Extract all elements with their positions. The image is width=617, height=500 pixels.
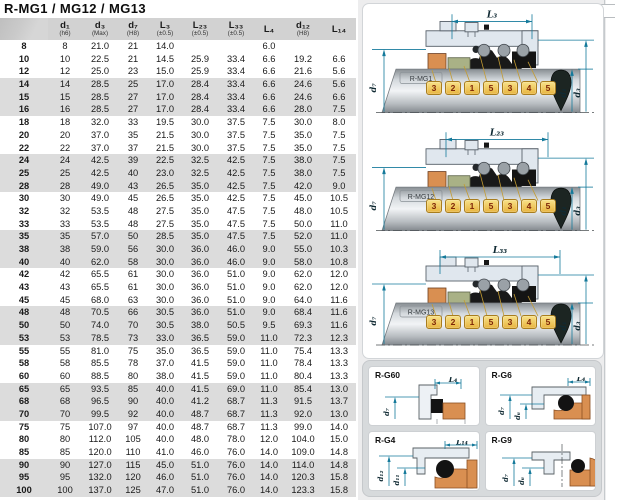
column-header: L₃(±0.5) bbox=[148, 18, 182, 40]
elastomer bbox=[431, 399, 443, 413]
part-number-tag: 3 bbox=[426, 315, 442, 329]
dim-d1-label: d₁ bbox=[558, 206, 568, 215]
seat-lip bbox=[590, 458, 597, 486]
table-row: 434365.56130.036.051.09.062.012.0 bbox=[0, 281, 356, 294]
diagram-r-mg1: R-MG1 L₃ d₇ d₁ d₃ bbox=[364, 8, 600, 120]
part-number-tag: 4 bbox=[521, 199, 537, 213]
panel-r-g6: R-G6 L₄ d₇ d₆ bbox=[485, 366, 597, 426]
spring-coils bbox=[478, 162, 529, 174]
seat-detail-panel: R-G60 L₄ d₇ R-G6 bbox=[362, 360, 602, 497]
table-row: 282849.04326.535.042.57.542.09.0 bbox=[0, 180, 356, 193]
seat-elastomer bbox=[428, 288, 446, 303]
page-title: R-MG1 / MG12 / MG13 bbox=[4, 1, 146, 16]
part-number-tags: 3215345 bbox=[426, 199, 556, 213]
part-number-tag: 1 bbox=[464, 315, 480, 329]
table-row: 8821.02114.06.0 bbox=[0, 40, 356, 53]
r-g4-drawing: L₁₄ d₁₂ d₁₁ bbox=[369, 440, 480, 490]
column-header: L₃₃(±0.5) bbox=[218, 18, 254, 40]
part-number-tag: 2 bbox=[445, 199, 461, 213]
table-row: 100100137.012547.051.076.014.0123.315.8 bbox=[0, 484, 356, 497]
column-header: d₇(H8) bbox=[118, 18, 148, 40]
r-g9-drawing: d₇ d₆ bbox=[486, 440, 597, 490]
part-number-tag: 3 bbox=[502, 315, 518, 329]
seat bbox=[443, 403, 465, 419]
dim-d3-label: d₃ bbox=[572, 206, 582, 216]
table-row: 353557.05028.535.047.57.552.011.0 bbox=[0, 230, 356, 243]
table-row: 252542.54023.032.542.57.538.07.5 bbox=[0, 167, 356, 180]
part-number-tag: 4 bbox=[521, 315, 537, 329]
dim-l23-label: L₂₃ bbox=[489, 127, 504, 138]
part-number-tag: 5 bbox=[483, 81, 499, 95]
dim-d1-label: d₁ bbox=[558, 88, 568, 97]
shaft-lines bbox=[437, 419, 465, 424]
table-row: 707099.59240.048.768.711.392.013.0 bbox=[0, 408, 356, 421]
part-number-tag: 3 bbox=[426, 81, 442, 95]
column-header: d₃(Max) bbox=[82, 18, 118, 40]
table-row: 404062.05830.036.046.09.058.010.8 bbox=[0, 256, 356, 269]
table-row: 242442.53922.532.542.57.538.07.5 bbox=[0, 154, 356, 167]
table-row: 424265.56130.036.051.09.062.012.0 bbox=[0, 268, 356, 281]
part-number-tags: 3215345 bbox=[426, 81, 556, 95]
table-row: 555581.07535.036.559.011.075.413.3 bbox=[0, 345, 356, 358]
column-header: L₄ bbox=[254, 18, 284, 40]
table-corner-cell bbox=[0, 18, 48, 40]
table-row: 606088.58038.041.559.011.080.413.3 bbox=[0, 370, 356, 383]
table-row: 535378.57333.036.559.011.072.312.3 bbox=[0, 332, 356, 345]
o-ring bbox=[436, 460, 454, 478]
r-g60-drawing: L₄ d₇ bbox=[369, 377, 480, 425]
column-header: d₁₂(H8) bbox=[284, 18, 322, 40]
table-row: 161628.52717.028.433.46.628.07.5 bbox=[0, 103, 356, 116]
part-number-tag: 3 bbox=[426, 199, 442, 213]
table-row: 454568.06330.036.051.09.064.011.6 bbox=[0, 294, 356, 307]
part-number-tag: 3 bbox=[502, 199, 518, 213]
part-number-tag: 5 bbox=[540, 199, 556, 213]
part-number-tag: 5 bbox=[483, 199, 499, 213]
set-screw bbox=[484, 260, 489, 265]
seat-lip bbox=[582, 395, 590, 419]
column-header: L₂₃(±0.5) bbox=[182, 18, 218, 40]
dim-d7-label: d₇ bbox=[368, 201, 378, 211]
seal-face bbox=[448, 292, 470, 303]
seat-elastomer bbox=[428, 54, 446, 70]
table-row: 303049.04526.535.042.57.545.010.5 bbox=[0, 192, 356, 205]
table-row: 686896.59040.041.268.711.391.513.7 bbox=[0, 395, 356, 408]
datasheet-page: R-MG1 / MG12 / MG13 d₁(h6)d₃(Max)d₇(H8)L… bbox=[0, 0, 617, 500]
part-number-tag: 5 bbox=[483, 315, 499, 329]
table-row: 484870.56630.536.051.09.068.411.6 bbox=[0, 306, 356, 319]
dim-d7-label: d₇ bbox=[368, 316, 378, 326]
table-row: 141428.52517.028.433.46.624.65.6 bbox=[0, 78, 356, 91]
dim-d1-label: d₁ bbox=[558, 321, 568, 330]
panel-r-g4: R-G4 L₁₄ d₁₂ d₁₁ bbox=[368, 431, 480, 491]
page-edge-line bbox=[604, 0, 605, 500]
table-row: 181832.03319.530.037.57.530.08.0 bbox=[0, 116, 356, 129]
r-mg12-drawing: R-MG12 L₂₃ d₇ d₁ d₃ bbox=[364, 126, 600, 242]
seal-diagrams-panel: R-MG1 L₃ d₇ d₁ d₃ bbox=[362, 3, 604, 359]
r-mg13-drawing: R-MG13 L₃₃ d₇ d₁ d₃ bbox=[364, 244, 600, 356]
panel-r-g60: R-G60 L₄ d₇ bbox=[368, 366, 480, 426]
dim-l3-label: L₃ bbox=[486, 9, 497, 20]
seat-housing bbox=[532, 452, 570, 474]
table-row: 151528.52717.028.433.46.624.66.6 bbox=[0, 91, 356, 104]
dim-l14-label: L₁₄ bbox=[455, 440, 468, 447]
table-header-row: d₁(h6)d₃(Max)d₇(H8)L₃(±0.5)L₂₃(±0.5)L₃₃(… bbox=[0, 18, 356, 40]
part-number-tag: 5 bbox=[540, 81, 556, 95]
part-number-tag: 5 bbox=[540, 315, 556, 329]
o-ring bbox=[571, 459, 585, 473]
dim-d6-label: d₆ bbox=[513, 412, 522, 420]
table-row: 585885.57837.041.559.011.078.413.3 bbox=[0, 357, 356, 370]
part-number-tag: 2 bbox=[445, 81, 461, 95]
dim-d3-label: d₃ bbox=[572, 321, 582, 331]
table-row: 656593.58540.041.569.011.085.413.0 bbox=[0, 383, 356, 396]
dim-d12-label: d₁₂ bbox=[376, 470, 385, 481]
dim-d7-label: d₇ bbox=[382, 408, 391, 416]
table-row: 222237.03721.530.037.57.535.07.5 bbox=[0, 142, 356, 155]
part-number-tag: 1 bbox=[464, 199, 480, 213]
diagram-r-mg12: R-MG12 L₂₃ d₇ d₁ d₃ bbox=[364, 126, 600, 238]
r-g6-drawing: L₄ d₇ d₆ bbox=[486, 377, 597, 425]
o-ring bbox=[558, 395, 574, 411]
seat-elastomer bbox=[428, 172, 446, 188]
set-screw bbox=[484, 25, 489, 30]
column-header: L₁₄ bbox=[322, 18, 356, 40]
part-number-tag: 1 bbox=[464, 81, 480, 95]
set-screw bbox=[484, 143, 489, 148]
table-row: 9595132.012046.051.076.014.0120.315.8 bbox=[0, 471, 356, 484]
dim-d3-label: d₃ bbox=[572, 88, 582, 98]
table-row: 101022.52114.525.933.46.619.26.6 bbox=[0, 53, 356, 66]
part-number-tag: 4 bbox=[521, 81, 537, 95]
table-row: 121225.02315.025.933.46.621.65.6 bbox=[0, 65, 356, 78]
spring-coils bbox=[478, 44, 529, 56]
dimension-table: d₁(h6)d₃(Max)d₇(H8)L₃(±0.5)L₂₃(±0.5)L₃₃(… bbox=[0, 18, 356, 497]
table-row: 8585120.011041.046.076.014.0109.014.8 bbox=[0, 446, 356, 459]
dim-l4-label: L₄ bbox=[448, 377, 458, 384]
table-body: 8821.02114.06.0101022.52114.525.933.46.6… bbox=[0, 40, 356, 497]
part-number-tags: 3215345 bbox=[426, 315, 556, 329]
table-row: 7575107.09740.048.768.711.399.014.0 bbox=[0, 421, 356, 434]
column-header: d₁(h6) bbox=[48, 18, 82, 40]
seal-face bbox=[448, 58, 470, 69]
dim-d6-label: d₆ bbox=[517, 477, 526, 485]
table-row: 323253.54827.535.047.57.548.010.5 bbox=[0, 205, 356, 218]
table-row: 383859.05630.036.046.09.055.010.3 bbox=[0, 243, 356, 256]
table-row: 9090127.011545.051.076.014.0114.014.8 bbox=[0, 459, 356, 472]
dim-d11-label: d₁₁ bbox=[392, 474, 401, 485]
table-row: 8080112.010540.048.078.012.0104.015.0 bbox=[0, 433, 356, 446]
r-mg1-drawing: R-MG1 L₃ d₇ d₁ d₃ bbox=[364, 8, 600, 124]
table-row: 333353.54827.535.047.57.550.011.0 bbox=[0, 218, 356, 231]
panel-r-g9: R-G9 d₇ d₆ bbox=[485, 431, 597, 491]
dimension-arrowheads bbox=[512, 458, 531, 474]
dim-d7-label: d₇ bbox=[497, 407, 506, 415]
spring-coils bbox=[478, 279, 529, 291]
seat-lip bbox=[467, 460, 477, 488]
table-row: 202037.03521.530.037.57.535.07.5 bbox=[0, 129, 356, 142]
part-number-tag: 3 bbox=[502, 81, 518, 95]
table-row: 505074.07030.538.050.59.569.311.6 bbox=[0, 319, 356, 332]
diagram-r-mg13: R-MG13 L₃₃ d₇ d₁ d₃ bbox=[364, 244, 600, 356]
part-number-tag: 2 bbox=[445, 315, 461, 329]
dim-d7-label: d₇ bbox=[501, 474, 510, 482]
dim-l4-label: L₄ bbox=[575, 377, 585, 383]
dim-l33-label: L₃₃ bbox=[492, 246, 507, 256]
seal-face bbox=[448, 176, 470, 187]
dim-d7-label: d₇ bbox=[368, 83, 378, 93]
